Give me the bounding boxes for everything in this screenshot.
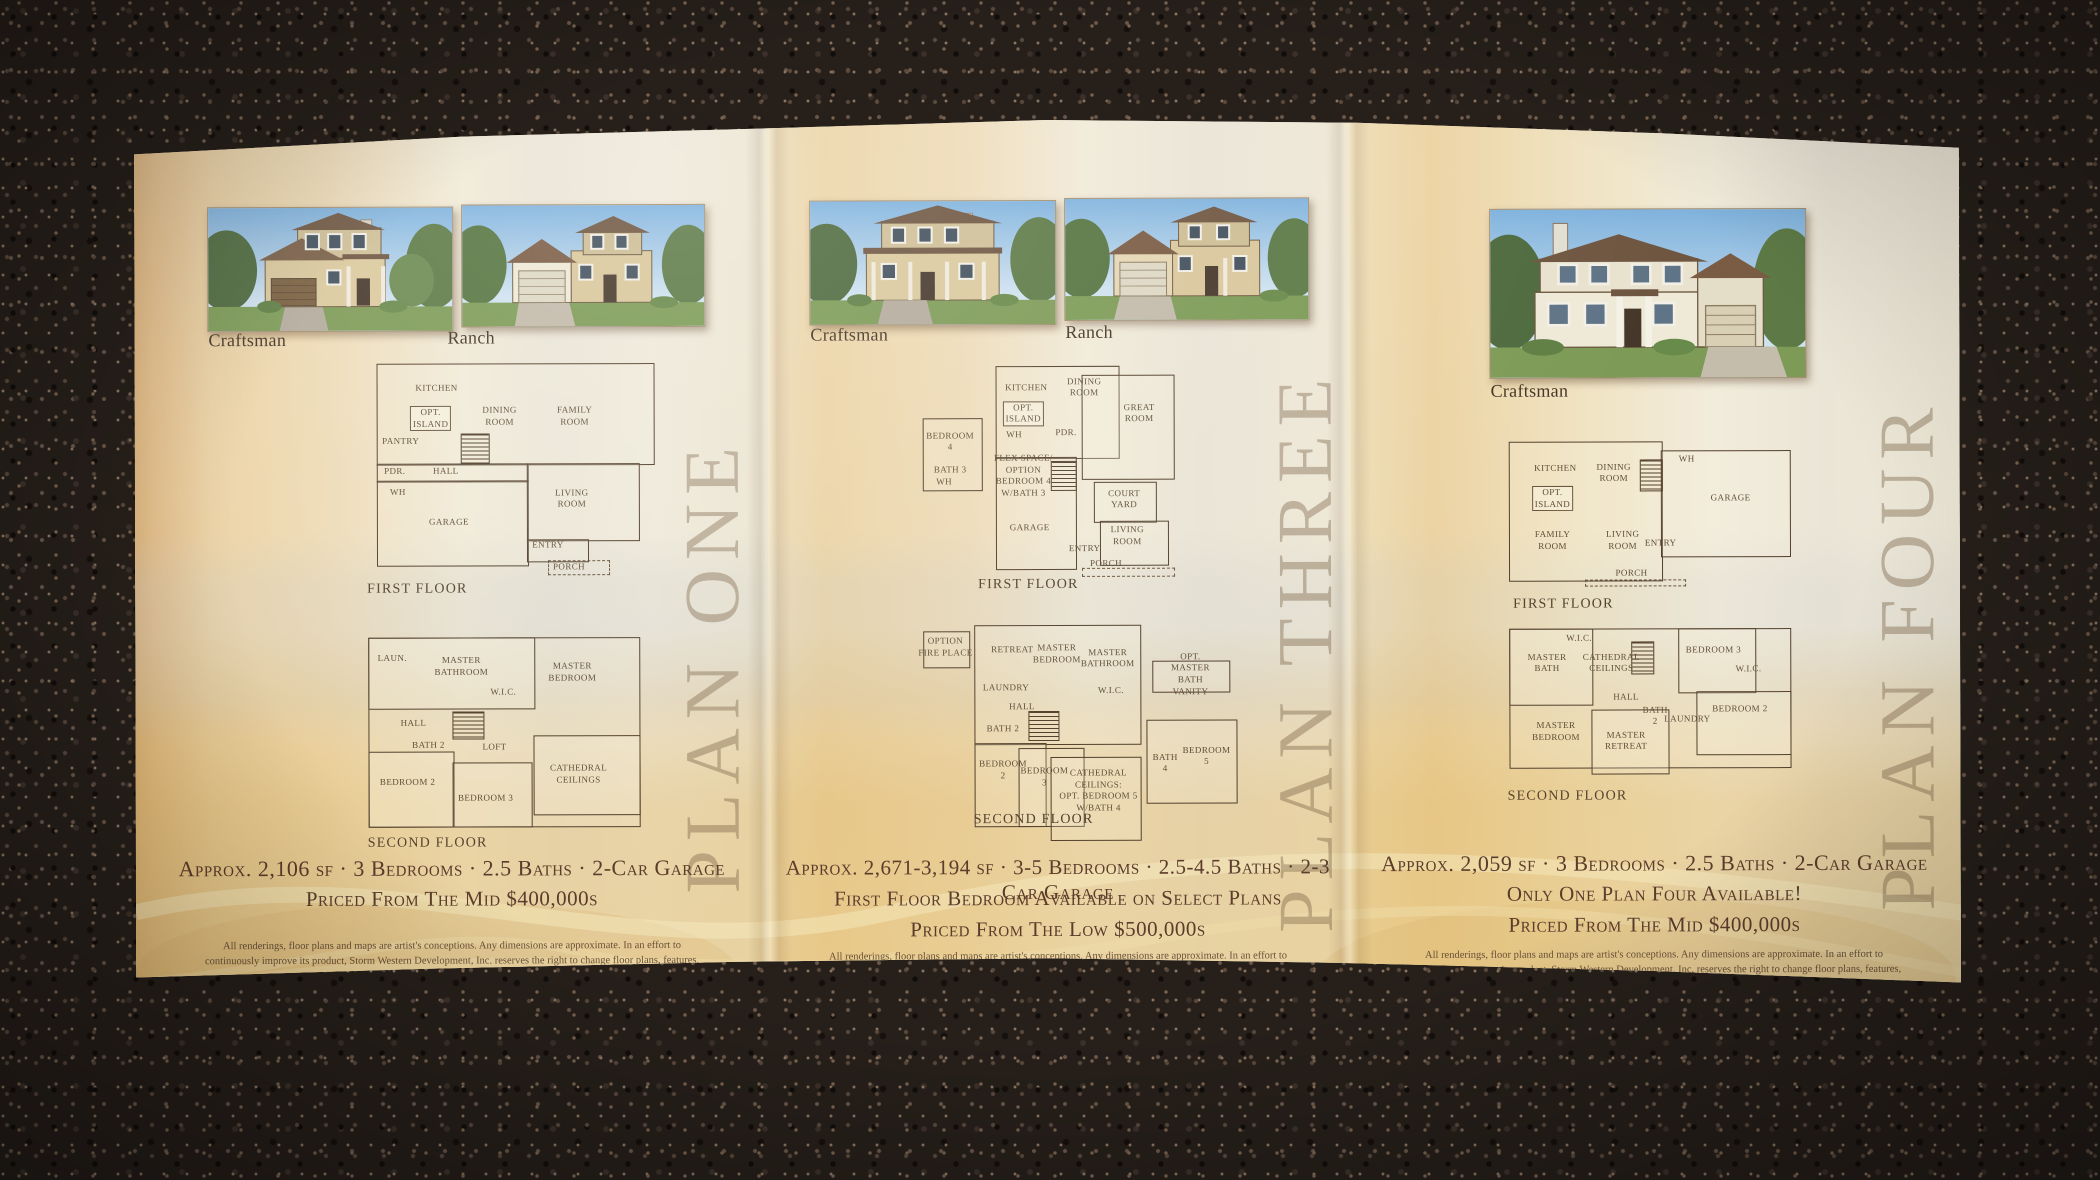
room-label: OPT. ISLAND [1532,486,1573,511]
room-label: DINING ROOM [482,405,516,428]
room-label: WH [390,487,406,499]
house-illustration [1065,198,1308,320]
floor-caption: FIRST FLOOR [978,577,1079,593]
room-label: ENTRY [532,540,564,552]
room-label: OPT. ISLAND [1003,401,1044,426]
room-label: MASTER BEDROOM [548,661,596,685]
room-label: LIVING ROOM [555,487,588,510]
room-label: HALL [401,718,427,730]
room-label: GARAGE [1711,492,1751,504]
room-label: BATH 4 [1153,752,1178,775]
room-label: BEDROOM 2 [1712,704,1767,716]
price-line: Priced From The Mid $400,000s [1358,912,1951,939]
room-label: KITCHEN [1534,463,1576,475]
room-label: OPT. ISLAND [410,406,451,431]
room-label: BATH 2 [987,724,1020,736]
room-label: BEDROOM 4 [926,430,974,454]
floorplan-outline [1678,628,1756,693]
floor-caption: SECOND FLOOR [1508,788,1628,804]
room-label: RETREAT [991,644,1033,656]
room-label: CATHEDRAL CEILINGS: OPT. BEDROOM 5 W/BAT… [1059,767,1137,814]
room-label: CATHEDRAL CEILINGS [550,763,607,787]
option-inset-outline [923,418,983,491]
room-label: W.I.C. [490,686,516,698]
room-label: PDR. [1055,427,1076,439]
room-label: MASTER BEDROOM [1532,720,1580,744]
house-illustration [208,208,452,332]
house-illustration [810,201,1055,325]
room-label: HALL [1009,701,1035,713]
room-label: GREAT ROOM [1124,402,1155,425]
room-label: MASTER RETREAT [1605,729,1647,752]
photo-of-brochure-on-countertop: Craftsman [0,0,2100,1180]
room-label: FAMILY ROOM [557,405,592,428]
room-label: BATH 2 [412,739,445,751]
plan-one-first-floor-plan: KITCHEN OPT. ISLAND DINING ROOM FAMILY R… [361,363,662,576]
floor-caption: SECOND FLOOR [368,835,488,851]
floor-caption: SECOND FLOOR [974,812,1094,828]
room-label: FLEX SPACE/ OPTION BEDROOM 4 W/BATH 3 [994,453,1053,500]
room-label: HALL [1613,691,1639,703]
note-line: First Floor Bedroom Available on Select … [778,885,1338,911]
room-label: LOFT [482,741,506,753]
house-illustration [1490,209,1805,378]
stairs [1051,461,1077,491]
room-label: WH [1006,429,1022,441]
house-illustration [462,205,704,327]
price-line: Priced From The Low $500,000s [778,916,1338,942]
plan-one-craftsman-photo [207,207,453,333]
floorplan-outline [369,751,455,828]
style-label: Craftsman [810,324,888,345]
room-label: MASTER BATHROOM [1081,647,1135,671]
room-label: PORCH [1615,568,1647,580]
room-label: CATHEDRAL CEILINGS [1583,651,1640,675]
room-label: W.I.C. [1566,632,1592,644]
plan-four-craftsman-photo [1489,208,1806,379]
room-label: OPT. MASTER BATH VANITY [1165,651,1216,698]
plan-four-second-floor-plan: MASTER BATH W.I.C. CATHEDRAL CEILINGS BE… [1503,622,1795,779]
room-label: BEDROOM 3 [1686,644,1741,656]
disclaimer: All renderings, floor plans and maps are… [202,939,702,984]
room-label: MASTER BATH [1528,652,1567,675]
plan-one-ranch-photo [461,204,705,328]
floor-caption: FIRST FLOOR [1513,597,1614,613]
room-label: WH [1679,453,1695,465]
room-label: HALL [433,466,459,478]
floor-caption: FIRST FLOOR [367,582,468,598]
room-label: DINING ROOM [1067,376,1101,399]
room-label: W.I.C. [1736,663,1762,675]
specs-line: Approx. 2,106 sf · 3 Bedrooms · 2.5 Bath… [166,855,738,882]
disclaimer: All renderings, floor plans and maps are… [1404,948,1904,993]
stairs [1640,459,1663,491]
room-label: MASTER BATHROOM [434,655,488,679]
room-label: W.I.C. [1098,685,1124,697]
room-label: GARAGE [1010,522,1050,534]
room-label: PORCH [1090,558,1122,570]
room-label: BEDROOM 2 [380,777,435,789]
room-label: FAMILY ROOM [1535,529,1570,552]
style-label: Ranch [1065,322,1113,343]
room-label: BEDROOM 5 [1183,745,1231,769]
price-line: Priced From The Mid $400,000s [166,886,738,912]
plan-three-craftsman-photo [809,200,1056,326]
room-label: WH [936,477,952,489]
room-label: LAUN. [378,653,407,665]
room-label: BEDROOM 3 [458,792,513,804]
room-label: OPTION FIRE PLACE [918,636,972,660]
room-label: KITCHEN [415,383,457,395]
plan-three-first-floor-plan: BEDROOM 4 BATH 3 WH KITCHEN OPT. ISLAND … [922,362,1228,578]
stairs [452,712,484,740]
room-label: PORCH [553,561,585,573]
note-line: Only One Plan Four Available! [1358,881,1951,908]
plan-one-second-floor-plan: LAUN. MASTER BATHROOM MASTER BEDROOM W.I… [362,633,663,830]
room-label: BATH 3 [934,464,967,476]
style-label: Craftsman [208,330,286,351]
specs-line: Approx. 2,059 sf · 3 Bedrooms · 2.5 Bath… [1358,850,1951,878]
porch-outline [1585,579,1686,586]
style-label: Ranch [447,327,495,348]
room-label: LIVING ROOM [1111,524,1144,547]
room-label: LAUNDRY [983,683,1029,695]
room-label: LAUNDRY [1664,713,1710,725]
room-label: PDR. [384,466,405,478]
room-label: KITCHEN [1005,382,1047,394]
style-label: Craftsman [1491,381,1569,402]
stairs [1028,711,1059,740]
room-label: ENTRY [1645,538,1677,550]
plan-three-ranch-photo [1064,197,1309,321]
room-label: DINING ROOM [1597,461,1631,484]
room-label: GARAGE [429,517,469,529]
room-label: ENTRY [1069,543,1101,555]
trifold-brochure: Craftsman [134,110,1961,1003]
room-label: PANTRY [382,436,419,448]
plan-four-first-floor-plan: KITCHEN OPT. ISLAND DINING ROOM WH GARAG… [1503,435,1795,586]
room-label: LIVING ROOM [1606,529,1639,552]
stairs [461,433,490,463]
room-label: COURT YARD [1108,488,1140,511]
disclaimer: All renderings, floor plans and maps are… [808,949,1308,994]
room-label: MASTER BEDROOM [1033,642,1081,666]
